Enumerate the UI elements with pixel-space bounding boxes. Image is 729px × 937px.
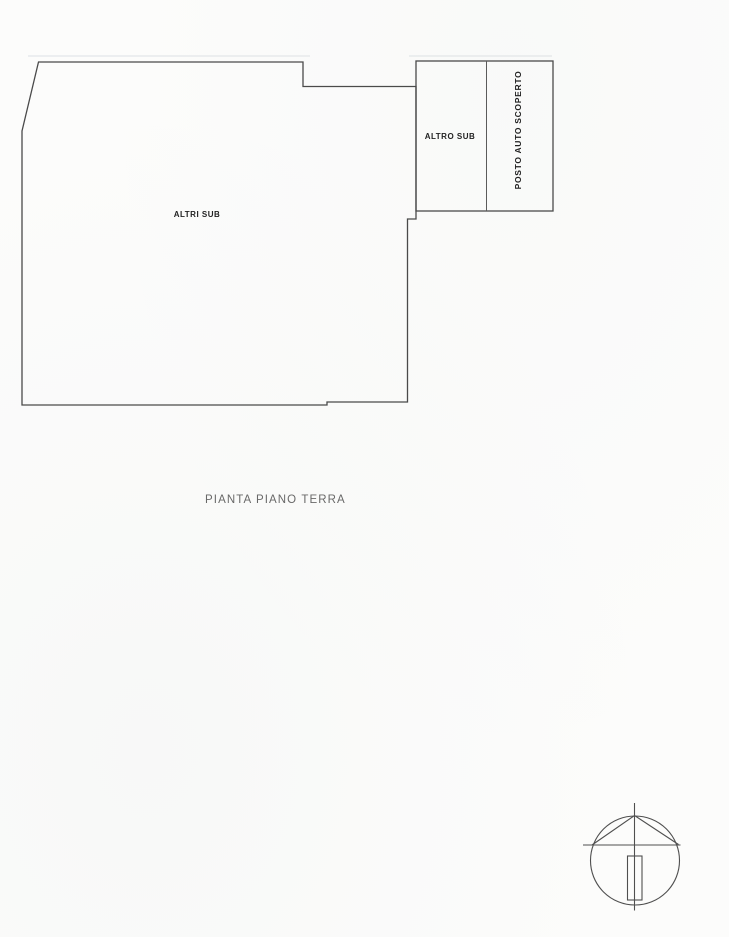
floorplan-drawing: [0, 0, 729, 937]
label-altro-sub: ALTRO SUB: [405, 132, 495, 141]
label-altri-sub: ALTRI SUB: [152, 210, 242, 219]
north-arrow-icon: [583, 803, 681, 911]
plan-caption: PIANTA PIANO TERRA: [205, 494, 337, 506]
main-unit-outline: [22, 62, 416, 405]
north-arrow-triangle: [592, 816, 679, 846]
label-posto-auto-scoperto: POSTO AUTO SCOPERTO: [513, 70, 523, 190]
scanned-floorplan-page: ALTRI SUB ALTRO SUB POSTO AUTO SCOPERTO …: [0, 0, 729, 937]
